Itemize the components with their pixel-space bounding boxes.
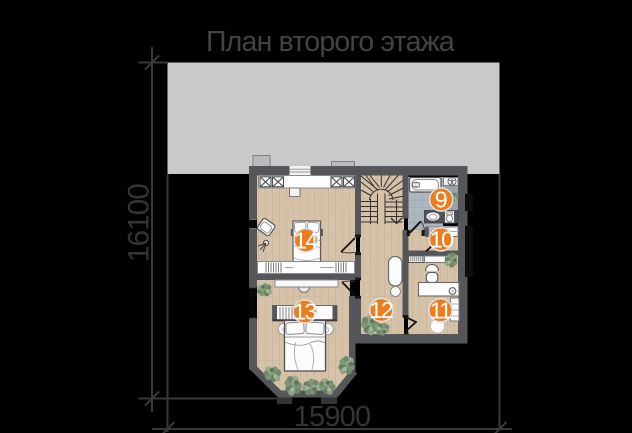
svg-text:16100: 16100 [123,184,156,262]
svg-text:План второго этажа: План второго этажа [206,26,455,58]
svg-text:10: 10 [430,226,454,252]
svg-text:13: 13 [293,299,317,325]
svg-text:11: 11 [430,297,452,323]
svg-text:12: 12 [370,297,393,323]
svg-text:14: 14 [294,227,318,253]
svg-text:9: 9 [435,187,448,213]
svg-text:15900: 15900 [294,401,371,433]
